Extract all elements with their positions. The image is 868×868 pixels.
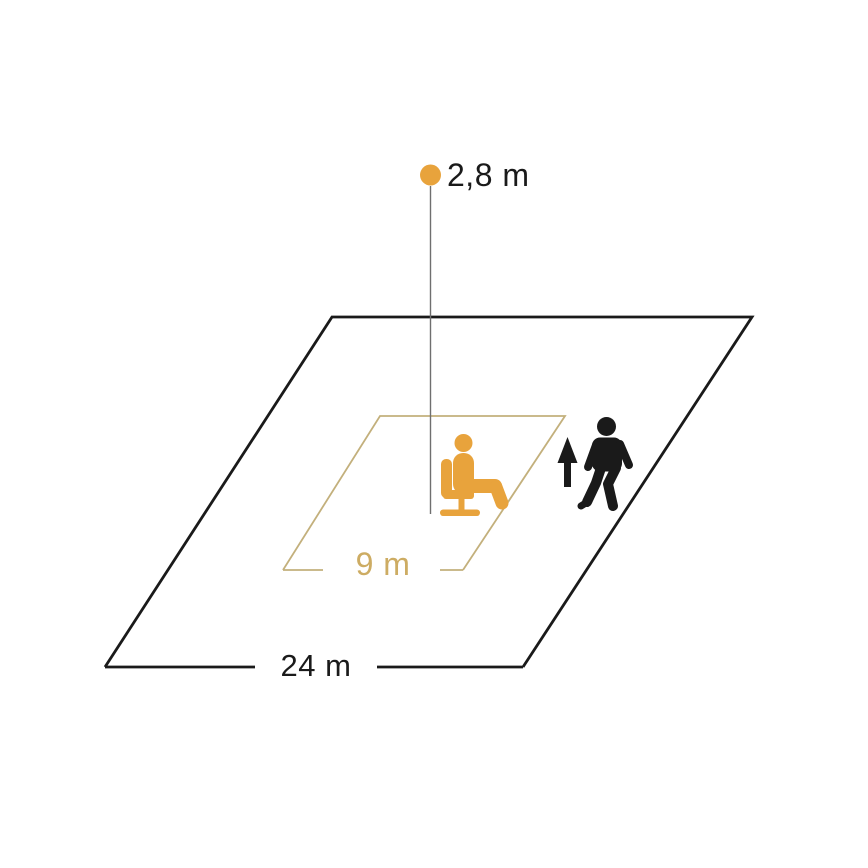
sensor-range-diagram	[0, 0, 868, 868]
seated-person-head	[455, 434, 473, 452]
up-arrow-shaft	[564, 461, 571, 487]
walking-person-back-leg	[608, 468, 616, 506]
walking-person-front-foot	[581, 501, 589, 506]
up-arrow-icon	[558, 437, 578, 487]
presence-area-outline	[283, 416, 565, 570]
walking-person-front-leg	[587, 468, 601, 502]
diagram-canvas: 2,8 m 9 m 24 m	[0, 0, 868, 868]
seated-person-lower-leg	[496, 487, 502, 503]
walking-person-head	[597, 417, 616, 436]
seated-person-icon	[440, 434, 502, 516]
walking-person-icon	[581, 417, 629, 506]
presence-range-label: 9 m	[356, 547, 411, 581]
chair-pedestal	[459, 497, 465, 511]
mounting-height-label: 2,8 m	[447, 158, 530, 192]
up-arrow-head	[558, 437, 578, 463]
detection-area-outline	[105, 317, 752, 667]
chair-base	[440, 510, 480, 517]
sensor-dot	[420, 165, 441, 186]
motion-range-label: 24 m	[281, 649, 352, 683]
